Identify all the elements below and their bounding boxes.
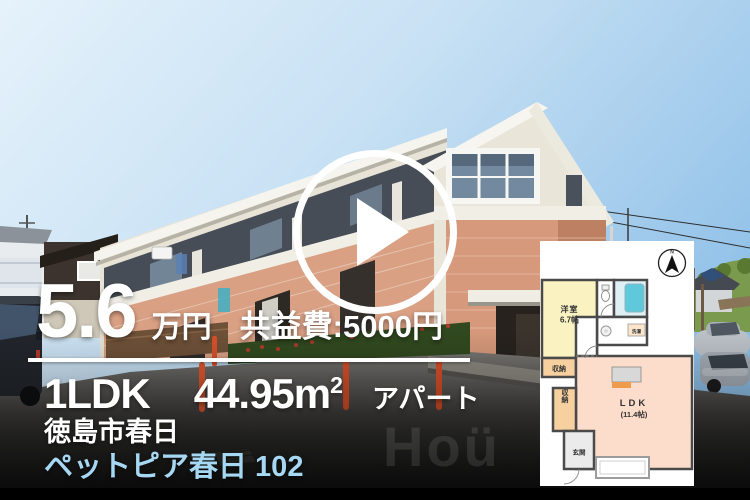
bedroom-label: 洋室 (561, 304, 579, 314)
bathtub (625, 284, 644, 312)
floor-area-value: 44.95m (194, 370, 330, 417)
price-unit: 万円 (152, 302, 212, 346)
toilet-tank (602, 285, 609, 290)
price-value: 5.6 (36, 270, 136, 354)
common-fee: 共益費:5000円 (240, 301, 443, 346)
closet1-label: 収納 (552, 364, 566, 373)
play-icon (357, 198, 409, 266)
watermark: Hoü (383, 414, 501, 479)
bottom-bar (0, 488, 750, 500)
floor-area: 44.95m2 (194, 370, 342, 418)
kitchen-counter (612, 367, 641, 382)
compass-icon: N (659, 250, 686, 277)
floor-area-exponent: 2 (330, 372, 342, 398)
bedroom-size-label: 6.7帖 (560, 315, 579, 325)
kitchen-accent (612, 382, 631, 388)
listing-card: Hoü 5.6 万円 共益費:5000円 1LDK 44.95m2 アパート 徳… (0, 0, 750, 500)
washbasin-drain (604, 329, 608, 333)
floorplan-panel[interactable]: N (540, 241, 694, 486)
ldk-label: LDK (620, 398, 649, 409)
divider-line (28, 358, 470, 362)
closet2-label: 収納 (561, 388, 569, 404)
balcony (596, 457, 649, 478)
toilet-bowl (602, 291, 610, 302)
ldk-size-label: (11.4帖) (621, 409, 648, 419)
laundry-label: 洗濯 (632, 328, 642, 335)
entrance-label: 玄関 (573, 448, 587, 457)
price-row: 5.6 万円 共益費:5000円 (36, 270, 443, 354)
property-name: ペットピア春日 102 (44, 443, 303, 485)
compass-north-label: N (670, 250, 674, 256)
building-type: アパート (372, 377, 479, 416)
